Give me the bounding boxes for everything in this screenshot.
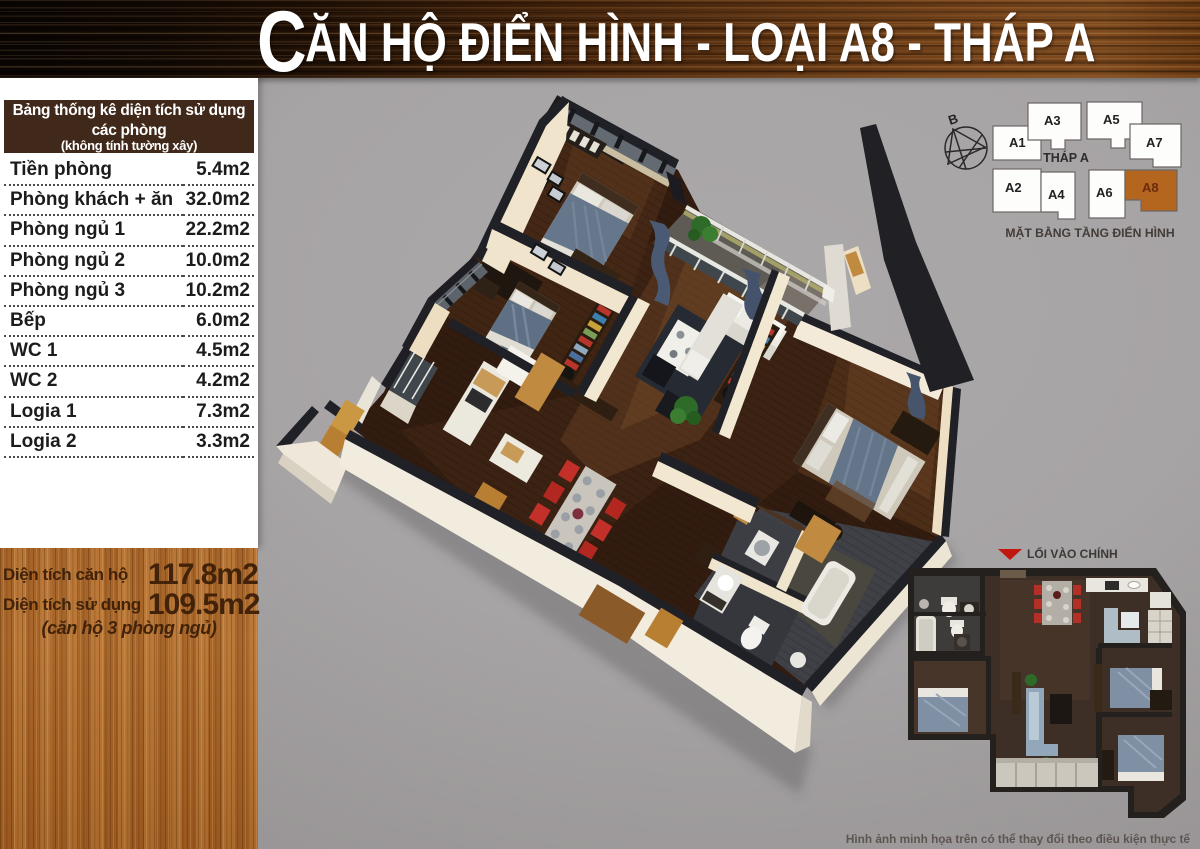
svg-text:A7: A7 <box>1146 135 1163 150</box>
svg-text:A8: A8 <box>1142 180 1159 195</box>
svg-text:A4: A4 <box>1048 187 1065 202</box>
svg-text:A6: A6 <box>1096 185 1113 200</box>
svg-text:A1: A1 <box>1009 135 1026 150</box>
svg-text:A2: A2 <box>1005 180 1022 195</box>
svg-text:B: B <box>946 111 960 128</box>
svg-text:MẶT BẰNG TẦNG ĐIỂN HÌNH: MẶT BẰNG TẦNG ĐIỂN HÌNH <box>1005 225 1174 240</box>
svg-text:A3: A3 <box>1044 113 1061 128</box>
svg-text:LỐI VÀO CHÍNH: LỐI VÀO CHÍNH <box>1027 546 1118 561</box>
svg-text:A5: A5 <box>1103 112 1120 127</box>
svg-text:THÁP A: THÁP A <box>1043 150 1089 165</box>
svg-text:Hình ảnh minh họa trên có thể: Hình ảnh minh họa trên có thể thay đổi t… <box>846 832 1191 846</box>
